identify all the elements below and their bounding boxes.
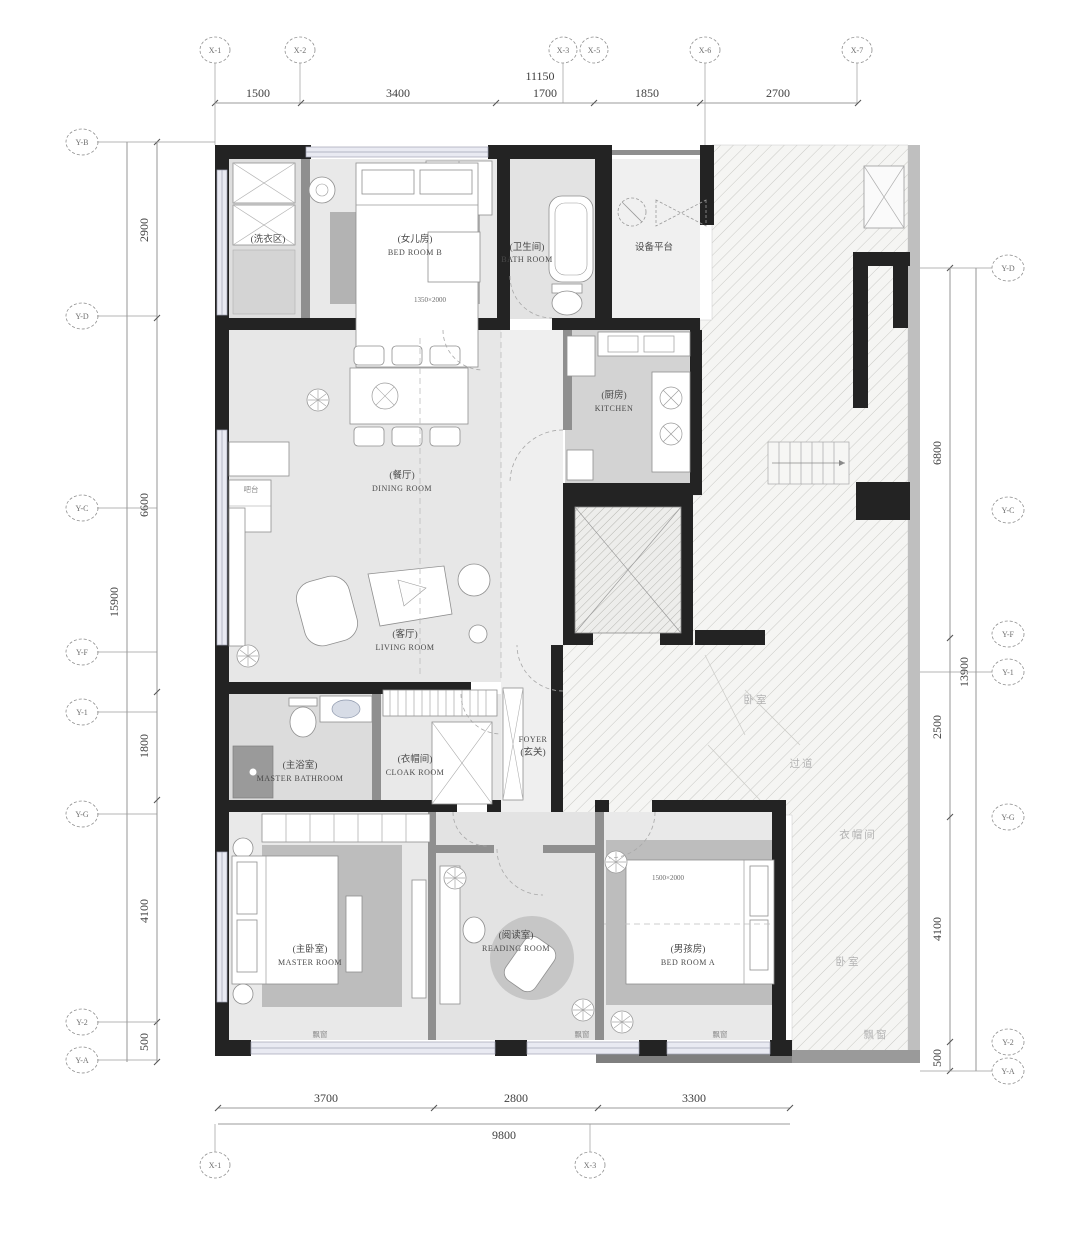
tv-console-icon [229,508,245,646]
floorplan-sheet: 卧室 过道 衣帽间 卧室 飘窗 [0,0,1080,1242]
bath-label-en: BATH ROOM [501,255,552,264]
dim-label: 4100 [137,899,151,923]
axis-label: Y-A [75,1056,89,1065]
chair-icon [392,427,422,446]
side-table-icon [309,177,335,203]
cloak-label-en: CLOAK ROOM [386,768,445,777]
neighbor-label: 衣帽间 [839,828,877,841]
dim-label: 6600 [137,493,151,517]
stairs-icon [768,442,849,484]
chair-icon [463,917,485,943]
plant-icon [572,999,594,1021]
bay-window-label: 飘窗 [575,1029,590,1039]
cloak-label-zh: (衣帽间) [398,753,433,765]
axis-label: X-3 [584,1161,596,1170]
master-label-zh: (主卧室) [293,943,328,955]
cabinet-icon [567,450,593,480]
equipment-label: 设备平台 [635,241,673,253]
plant-icon [611,1011,633,1033]
kitchen-label-zh: (厨房) [601,389,626,401]
master-bath-label-en: MASTER BATHROOM [257,774,344,783]
bar-label: 吧台 [244,484,259,494]
foyer-label-zh: (玄关) [520,746,545,758]
window-left-master [217,852,227,1002]
axis-label: Y-G [1001,813,1015,822]
laundry-label: (洗衣区) [251,233,286,245]
axis-label: Y-2 [1002,1038,1014,1047]
bay-window-bedroom-a [667,1042,770,1054]
kitchen-label-en: KITCHEN [595,404,634,413]
floor-lamp-icon [237,645,259,667]
master-label-en: MASTER ROOM [278,958,342,967]
axis-label: Y-1 [76,708,88,717]
axis-label: X-3 [557,46,569,55]
side-table-icon [469,625,487,643]
bay-window-reading [527,1042,639,1054]
axis-label: Y-C [1002,506,1015,515]
dim-label: 500 [930,1049,944,1067]
bedroom-b-bed-size: 1350×2000 [414,296,446,304]
laundry-counter [233,250,295,314]
dim-label: 2500 [930,715,944,739]
plant-icon [444,867,466,889]
bedroom-a-label-zh: (男孩房) [671,943,706,955]
axis-label: X-5 [588,46,600,55]
dim-label: 3700 [314,1091,338,1105]
chair-icon [392,346,422,365]
wardrobe-icon [262,814,430,842]
axis-bubbles-left: Y-B Y-D Y-C Y-F Y-1 Y-G Y-2 Y-A [66,129,215,1073]
window-bedroom-b-top [306,147,488,157]
window-left-living [217,430,227,645]
dining-label-en: DINING ROOM [372,484,432,493]
dim-total-bottom: 9800 [492,1128,516,1142]
axis-label: Y-F [76,648,89,657]
pillow-icon [420,170,472,194]
dimension-right: 6800 2500 4100 500 13900 [930,265,976,1074]
bench-icon [346,896,362,972]
furniture-bedroom-a [604,840,774,1033]
axis-bubbles-right: Y-D Y-C Y-F Y-1 Y-G Y-2 Y-A [920,255,1024,1084]
dim-label: 4100 [930,917,944,941]
chair-icon [354,427,384,446]
bedroom-b-label-en: BED ROOM B [388,248,442,257]
floorplan-drawing: 卧室 过道 衣帽间 卧室 飘窗 [0,0,1080,1242]
window-left-laundry [217,170,227,315]
bench-icon [428,232,480,282]
toilet-icon [290,707,316,737]
bedroom-b-label-zh: (女儿房) [398,233,433,245]
bath-label-zh: (卫生间) [510,241,545,253]
living-label-en: LIVING ROOM [375,643,434,652]
sink-icon [332,700,360,718]
pillow-icon [237,920,257,972]
neighbor-right-wall [908,145,920,1062]
nightstand-icon [233,984,253,1004]
axis-label: Y-B [76,138,89,147]
axis-label: Y-G [75,810,89,819]
dimension-top: 1500 3400 1700 1850 2700 11150 [212,69,861,106]
axis-label: Y-D [75,312,89,321]
neighbor-label: 飘窗 [864,1028,889,1041]
bedroom-a-bed-size: 1500×2000 [652,874,684,882]
bay-window-label: 飘窗 [313,1029,328,1039]
dim-total-left: 15900 [107,587,121,617]
dim-label: 3400 [386,86,410,100]
dresser-icon [412,880,426,998]
toilet-icon [552,291,582,315]
bedroom-a-label-en: BED ROOM A [661,958,715,967]
foyer-label-en: FOYER [519,735,548,744]
dim-label: 2800 [504,1091,528,1105]
dim-total-top: 11150 [525,69,554,83]
nightstand-icon [233,838,253,858]
chair-icon [430,346,460,365]
axis-label: Y-C [76,504,89,513]
axis-label: Y-A [1001,1067,1015,1076]
bay-window-master [251,1042,495,1054]
pillow-icon [237,862,257,914]
dining-label-zh: (餐厅) [389,469,414,481]
ottoman-icon [458,564,490,596]
axis-label: Y-2 [76,1018,88,1027]
axis-label: X-2 [294,46,306,55]
hanging-rack-icon [383,690,497,716]
axis-label: X-1 [209,46,221,55]
dim-label: 6800 [930,441,944,465]
axis-label: Y-1 [1002,668,1014,677]
dim-label: 3300 [682,1091,706,1105]
fridge-icon [567,336,595,376]
reading-label-zh: (阅读室) [499,929,534,941]
pillow-icon [362,170,414,194]
plant-icon [605,851,627,873]
dim-label: 2900 [137,218,151,242]
dim-label: 1700 [533,86,557,100]
dim-label: 1800 [137,734,151,758]
bar-counter-icon [229,442,289,476]
chair-icon [430,427,460,446]
axis-label: X-7 [851,46,863,55]
axis-label: X-6 [699,46,711,55]
neighbor-label: 卧室 [836,955,861,968]
chair-icon [354,346,384,365]
axis-bubbles-bottom: X-1 X-3 [200,1124,605,1178]
elevator-shaft [575,507,681,633]
reading-label-en: READING ROOM [482,944,550,953]
master-bath-label-zh: (主浴室) [283,759,318,771]
dim-label: 1500 [246,86,270,100]
living-label-zh: (客厅) [392,628,417,640]
axis-label: Y-F [1002,630,1015,639]
furniture-foyer [503,688,523,800]
neighbor-label: 卧室 [744,693,769,706]
neighbor-label: 过道 [790,757,815,770]
bay-window-label: 飘窗 [713,1029,728,1039]
pillow-icon [750,920,768,970]
axis-label: X-1 [209,1161,221,1170]
equipment-floor [612,159,700,320]
dimension-bottom: 3700 2800 3300 9800 [215,1091,793,1142]
plant-icon [307,389,329,411]
pillow-icon [750,866,768,916]
dim-label: 1850 [635,86,659,100]
axis-label: Y-D [1001,264,1015,273]
dim-label: 500 [137,1033,151,1051]
dim-label: 2700 [766,86,790,100]
dining-table-icon [350,368,468,424]
dimension-left: 2900 6600 1800 4100 500 15900 [107,139,160,1065]
